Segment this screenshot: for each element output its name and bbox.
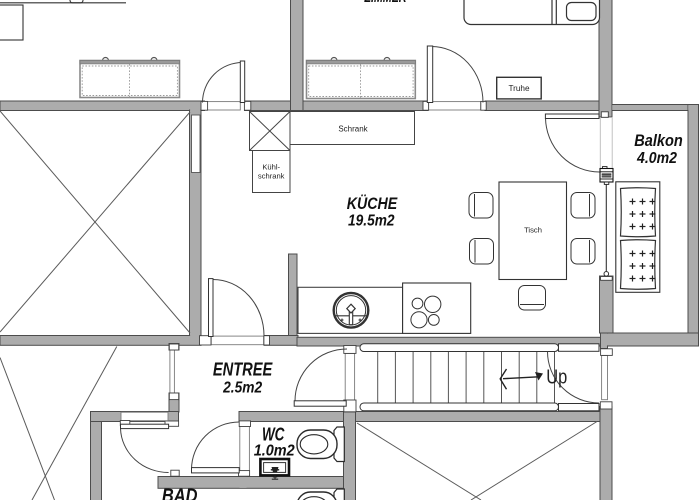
svg-text:Up: Up	[546, 366, 567, 388]
svg-text:4.0m2: 4.0m2	[636, 150, 677, 167]
svg-text:1.0m2: 1.0m2	[254, 443, 295, 460]
svg-text:19.5m2: 19.5m2	[348, 212, 395, 229]
svg-text:ENTREE: ENTREE	[213, 359, 273, 380]
svg-text:Tisch: Tisch	[524, 226, 542, 235]
svg-text:ZIMMER: ZIMMER	[364, 0, 407, 6]
svg-text:schrank: schrank	[258, 172, 285, 181]
svg-text:Truhe: Truhe	[508, 84, 530, 93]
svg-text:Balkon: Balkon	[634, 131, 683, 150]
svg-text:WC: WC	[262, 423, 285, 444]
svg-text:Schrank: Schrank	[338, 124, 368, 133]
svg-text:BAD: BAD	[162, 486, 198, 500]
svg-text:Kühl-: Kühl-	[262, 163, 280, 172]
svg-text:KÜCHE: KÜCHE	[347, 194, 398, 213]
svg-text:2.5m2: 2.5m2	[222, 380, 262, 397]
